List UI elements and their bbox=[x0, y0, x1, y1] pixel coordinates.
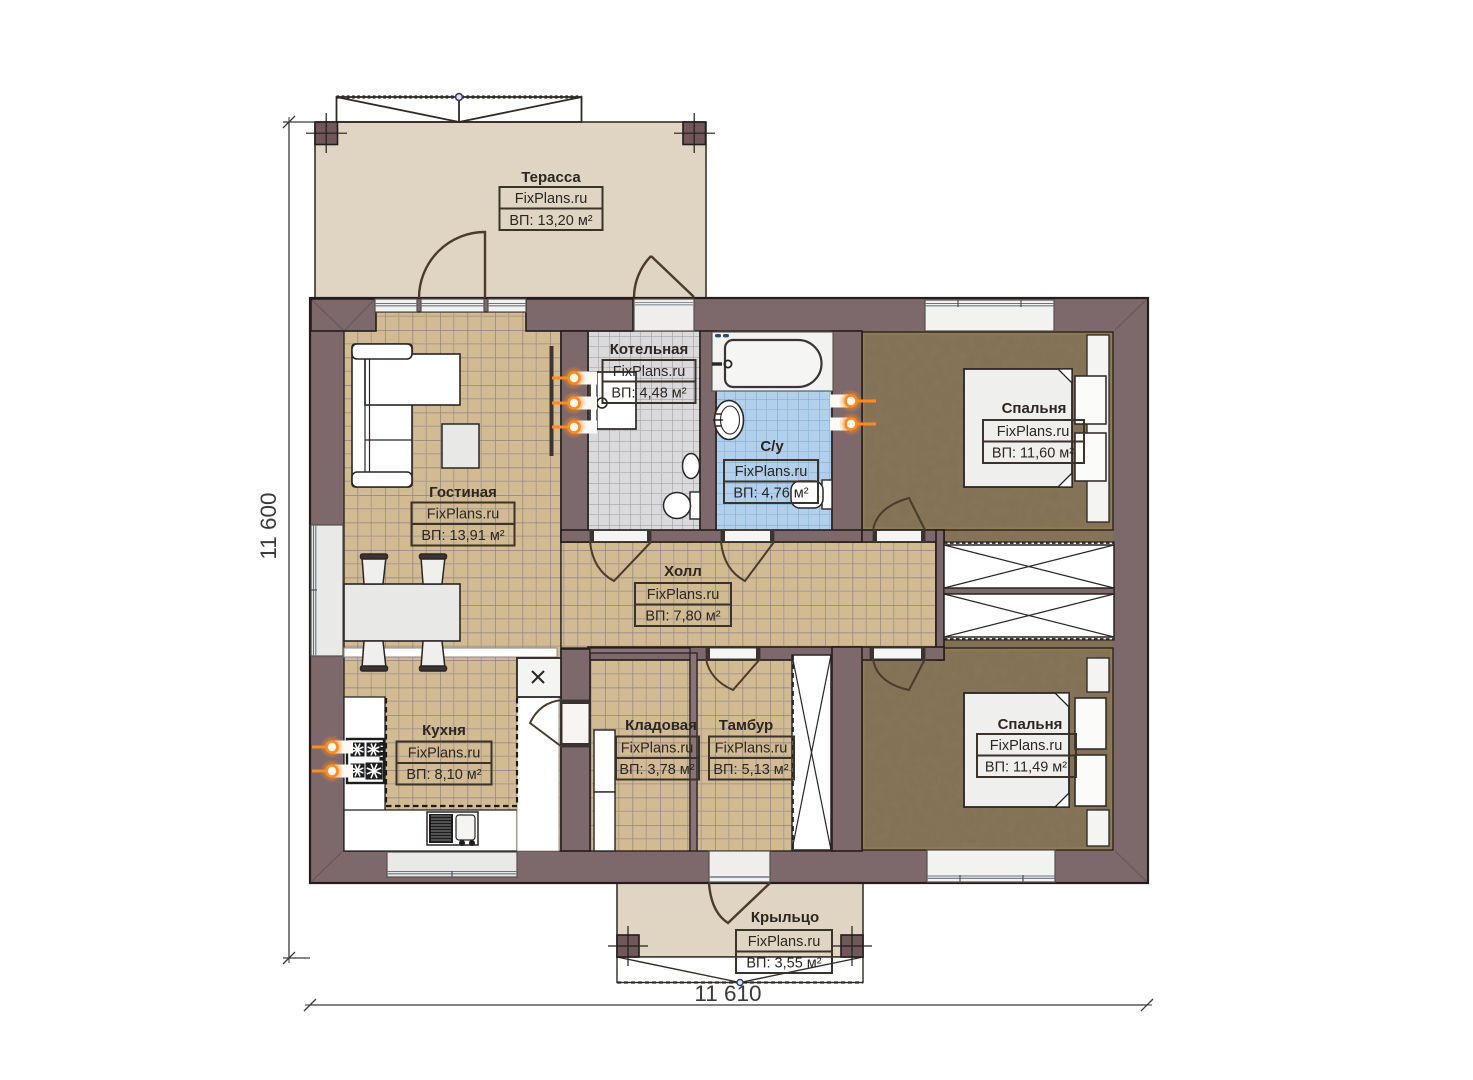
svg-text:ВП: 13,20 м²: ВП: 13,20 м² bbox=[509, 213, 592, 229]
svg-text:Холл: Холл bbox=[664, 563, 702, 580]
svg-text:FixPlans.ru: FixPlans.ru bbox=[990, 738, 1063, 754]
svg-text:Кладовая: Кладовая bbox=[625, 717, 697, 734]
svg-text:ВП: 3,78 м²: ВП: 3,78 м² bbox=[619, 762, 694, 778]
svg-text:11 610: 11 610 bbox=[694, 981, 761, 1006]
svg-text:ВП: 4,76 м²: ВП: 4,76 м² bbox=[733, 486, 808, 502]
svg-text:FixPlans.ru: FixPlans.ru bbox=[997, 424, 1070, 440]
svg-text:Спальня: Спальня bbox=[1002, 400, 1067, 417]
svg-text:ВП: 13,91 м²: ВП: 13,91 м² bbox=[421, 528, 504, 544]
svg-text:ВП: 5,13 м²: ВП: 5,13 м² bbox=[713, 762, 788, 778]
svg-text:11 600: 11 600 bbox=[256, 492, 281, 559]
svg-text:Котельная: Котельная bbox=[610, 341, 689, 358]
svg-text:FixPlans.ru: FixPlans.ru bbox=[735, 464, 808, 480]
svg-text:Гостиная: Гостиная bbox=[429, 484, 497, 501]
svg-text:ВП: 11,60 м²: ВП: 11,60 м² bbox=[992, 446, 1074, 462]
svg-text:FixPlans.ru: FixPlans.ru bbox=[427, 507, 500, 523]
svg-text:FixPlans.ru: FixPlans.ru bbox=[613, 364, 686, 380]
svg-text:ВП: 3,55 м²: ВП: 3,55 м² bbox=[746, 956, 821, 972]
svg-text:FixPlans.ru: FixPlans.ru bbox=[621, 741, 694, 757]
svg-text:Кухня: Кухня bbox=[422, 722, 466, 739]
svg-text:Спальня: Спальня bbox=[998, 716, 1063, 733]
svg-text:Тамбур: Тамбур bbox=[719, 717, 773, 734]
svg-text:FixPlans.ru: FixPlans.ru bbox=[647, 587, 720, 603]
svg-text:С/у: С/у bbox=[760, 438, 784, 455]
svg-text:ВП: 7,80 м²: ВП: 7,80 м² bbox=[645, 609, 720, 625]
svg-text:Терасса: Терасса bbox=[521, 169, 581, 186]
svg-text:ВП: 8,10 м²: ВП: 8,10 м² bbox=[406, 767, 481, 783]
svg-text:ВП: 11,49 м²: ВП: 11,49 м² bbox=[985, 760, 1067, 776]
svg-text:FixPlans.ru: FixPlans.ru bbox=[408, 746, 481, 762]
svg-text:FixPlans.ru: FixPlans.ru bbox=[715, 741, 788, 757]
svg-text:FixPlans.ru: FixPlans.ru bbox=[748, 934, 821, 950]
svg-text:ВП: 4,48 м²: ВП: 4,48 м² bbox=[611, 386, 686, 402]
svg-text:FixPlans.ru: FixPlans.ru bbox=[515, 191, 588, 207]
svg-text:Крыльцо: Крыльцо bbox=[751, 909, 819, 926]
